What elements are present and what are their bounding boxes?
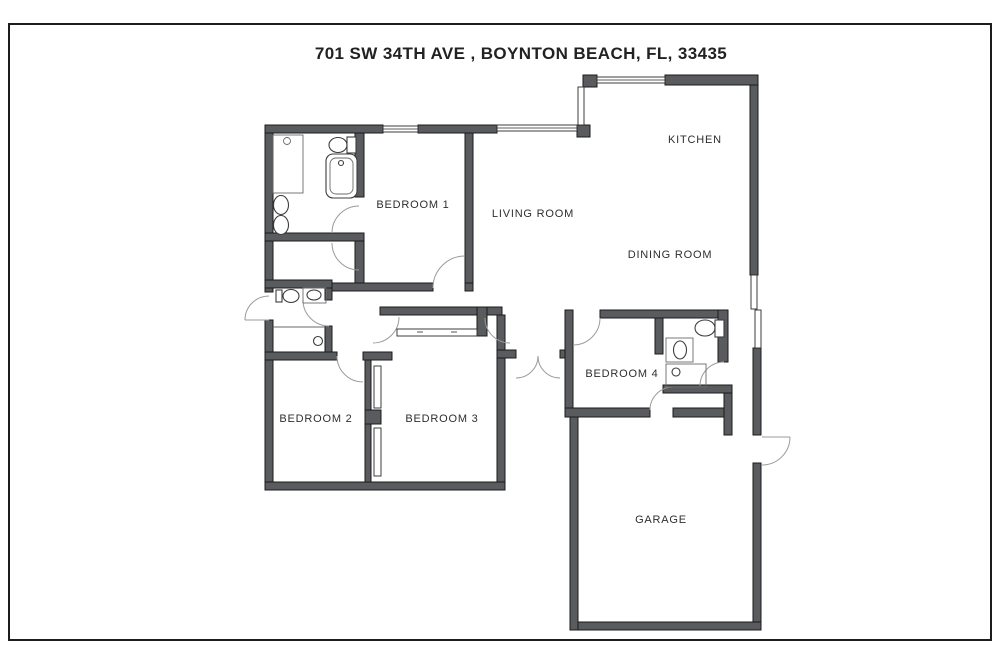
door-swing-icon-bath4 [700, 362, 724, 386]
window-icon [578, 87, 584, 125]
door-swing-icon-bedroom1 [433, 256, 465, 288]
wall-bedroom2-top-a [265, 352, 337, 360]
toilet-tank [715, 320, 724, 337]
closet-sliding-door-icon [374, 428, 381, 476]
wall-bath4-west [655, 318, 663, 354]
wall-garage-top-b [673, 408, 732, 417]
wall-bedroom4-left [565, 310, 573, 408]
wall-bedroom1-corner [465, 283, 473, 291]
window-icon [755, 310, 761, 348]
wall-bedroom2-top-b [363, 352, 392, 360]
room-label-bedroom-4: BEDROOM 4 [585, 368, 658, 380]
wall-garage-left [570, 409, 578, 630]
wall-step-corner-high [583, 75, 597, 87]
wall-garage-bottom [570, 622, 761, 630]
toilet-tank [276, 290, 282, 302]
toilet-icon [695, 320, 715, 336]
wall-closet-east [355, 241, 364, 283]
wall-garage-top-a [565, 408, 650, 417]
wall-hallbath-top [265, 280, 332, 288]
room-label-living-room: LIVING ROOM [492, 208, 574, 220]
door-swing-icon-entry [245, 296, 269, 320]
vanity-sink-icon [307, 290, 321, 300]
room-label-bedroom-3: BEDROOM 3 [405, 413, 478, 425]
toilet-icon [329, 138, 347, 153]
wall-left-upper [265, 125, 273, 292]
wall-step-corner-low [577, 125, 590, 137]
room-label-dining-room: DINING ROOM [628, 249, 713, 261]
room-label-kitchen: KITCHEN [668, 134, 722, 146]
wall-partition-23-mid [365, 410, 381, 424]
wall-top-living [418, 125, 497, 133]
bathtub-faucet [339, 161, 344, 166]
closet-sliding-door-icon [374, 366, 381, 408]
wall-bedroom1-bottom [325, 283, 433, 291]
door-swing-icon-hallbath [303, 300, 329, 326]
wall-left-lower [265, 320, 273, 490]
door-swing-icon-patio-left [516, 356, 538, 378]
closet-doors [374, 329, 477, 476]
wall-bedroom4-top [600, 310, 728, 318]
wall-top-bath [265, 125, 383, 133]
wall-hallbath-east-b [325, 326, 332, 352]
vanity-counter [273, 135, 303, 193]
wall-bedroom1-right [465, 133, 473, 283]
door-swing-icon-bath1 [332, 206, 359, 233]
vanity-sink-icon [674, 341, 687, 359]
toilet-icon [283, 290, 299, 303]
wall-right-mid [753, 348, 761, 435]
wall-kitchen-top [665, 75, 758, 85]
double-sink-icon [274, 216, 289, 235]
room-label-bedroom-2: BEDROOM 2 [279, 413, 352, 425]
wall-patio-stub-left [497, 350, 516, 358]
wall-bedrooms-bottom [265, 482, 505, 490]
toilet-tank [347, 137, 356, 153]
wall-right-garage [753, 463, 761, 630]
floor-plan-page: 701 SW 34TH AVE , BOYNTON BEACH, FL, 334… [0, 0, 1000, 667]
window-icon [751, 275, 757, 309]
door-swing-icon-side-entry [762, 437, 790, 465]
closet-sliding-door-icon [397, 329, 477, 336]
door-swing-icon-bedroom4 [573, 318, 600, 345]
wall-right-upper [750, 85, 758, 275]
room-label-bedroom-1: BEDROOM 1 [376, 199, 449, 211]
wall-corridor-east [724, 393, 732, 435]
vanity-sink-icon [284, 138, 291, 145]
floor-plan-drawing: KITCHEN LIVING ROOM DINING ROOM BEDROOM … [0, 0, 1000, 667]
shower-drain-icon [314, 337, 323, 346]
door-swing-icon-patio-right [538, 356, 560, 378]
room-label-garage: GARAGE [635, 514, 687, 526]
wall-bath4-bottom [663, 385, 732, 393]
door-swing-icon-bedroom2 [337, 356, 363, 382]
door-swing-icon-hallway [373, 317, 399, 343]
shower-drain-icon [672, 368, 680, 376]
double-sink-icon [274, 196, 289, 215]
